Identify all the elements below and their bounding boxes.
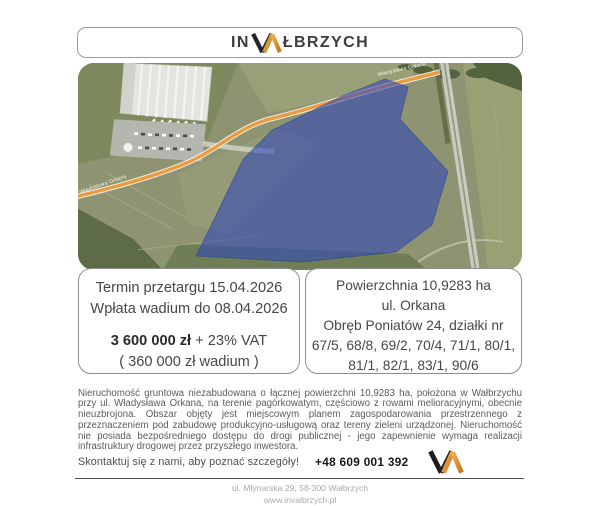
auction-info-box: Termin przetargu 15.04.2026 Wpłata wadiu…: [78, 268, 300, 374]
satellite-map: Władysława Orkana Władysława Orkana: [78, 63, 522, 270]
va-monogram-icon: [428, 449, 464, 475]
header-logo-box: IN ŁBRZYCH: [77, 27, 523, 58]
contact-row: Skontaktuj się z nami, aby poznać szczeg…: [78, 447, 522, 477]
small-building: [124, 143, 133, 152]
footer-divider: [75, 478, 524, 479]
price-value: 3 600 000 zł: [111, 333, 191, 349]
contact-cta: Skontaktuj się z nami, aby poznać szczeg…: [78, 456, 299, 468]
aerial-photo: Władysława Orkana Władysława Orkana: [78, 63, 522, 270]
logo-prefix: IN: [231, 35, 250, 51]
va-monogram-icon: [251, 32, 282, 54]
company-address: ul. Młynarska 29, 58-300 Wałbrzych: [78, 483, 522, 495]
price-vat: + 23% VAT: [191, 333, 267, 349]
company-website: www.invalbrzych.pl: [78, 495, 522, 506]
deposit-amount: ( 360 000 zł wadium ): [79, 352, 299, 373]
brand-logo: IN ŁBRZYCH: [231, 32, 369, 54]
deposit-deadline: Wpłata wadium do 08.04.2026: [79, 299, 299, 320]
plot-numbers-1: 67/5, 68/8, 69/2, 70/4, 71/1, 80/1,: [306, 336, 521, 356]
street-name: ul. Orkana: [306, 296, 521, 316]
logo-suffix: ŁBRZYCH: [283, 35, 369, 51]
phone-number: +48 609 001 392: [315, 455, 408, 469]
area-size: Powierzchnia 10,9283 ha: [306, 276, 521, 296]
auction-date: Termin przetargu 15.04.2026: [79, 278, 299, 299]
district-line: Obręb Poniatów 24, działki nr: [306, 316, 521, 336]
area-info-box: Powierzchnia 10,9283 ha ul. Orkana Obręb…: [305, 268, 522, 374]
price-line: 3 600 000 zł + 23% VAT: [79, 331, 299, 352]
property-description: Nieruchomość gruntowa niezabudowana o łą…: [78, 389, 522, 453]
plot-numbers-2: 81/1, 82/1, 83/1, 90/6: [306, 356, 521, 376]
